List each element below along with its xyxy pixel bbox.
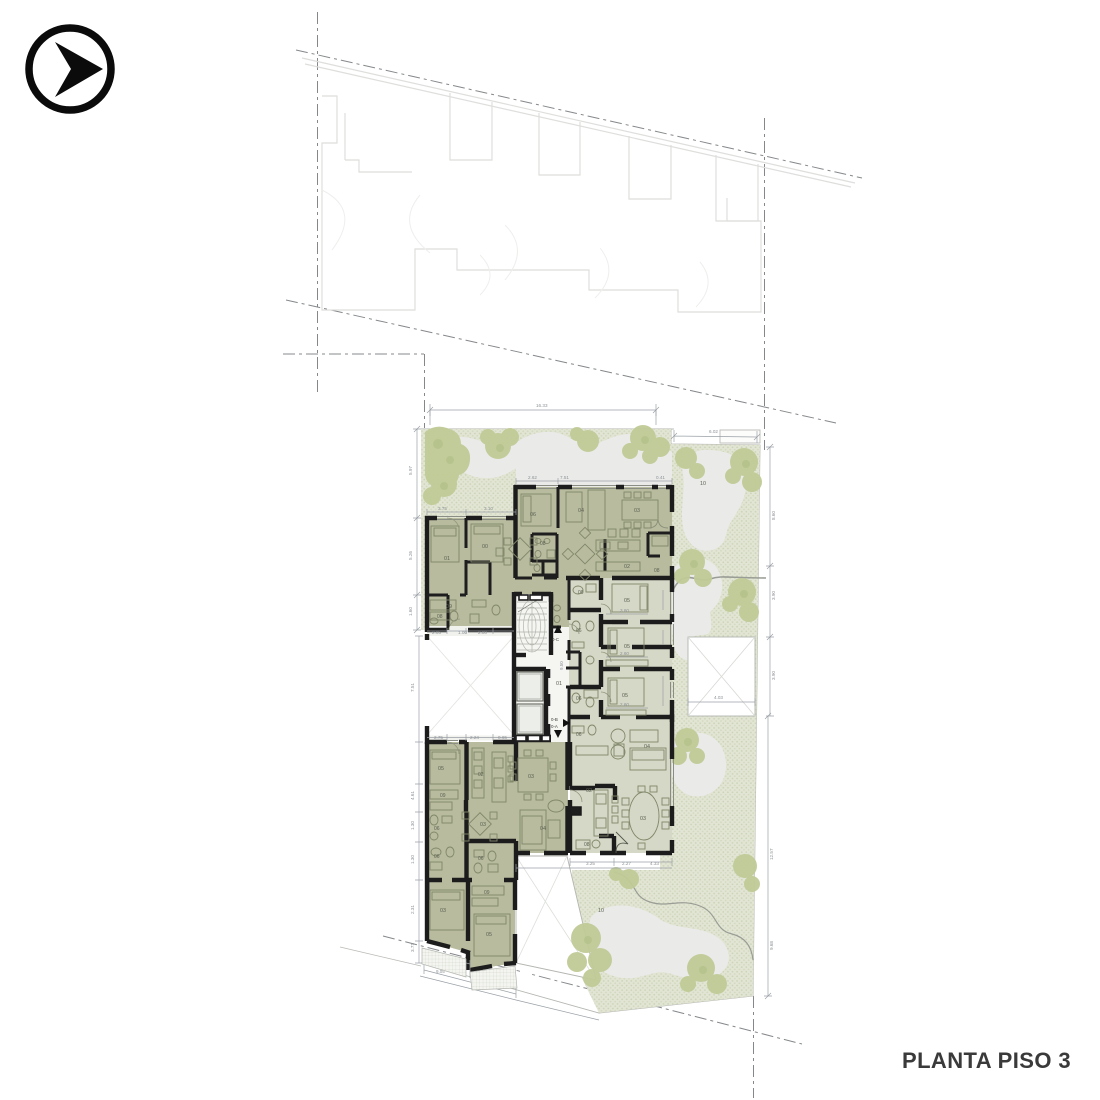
svg-text:1.30: 1.30 bbox=[410, 821, 415, 830]
svg-text:08: 08 bbox=[437, 614, 443, 620]
svg-text:0.65: 0.65 bbox=[498, 735, 507, 740]
svg-text:06: 06 bbox=[434, 854, 440, 860]
svg-text:10: 10 bbox=[598, 908, 604, 914]
svg-text:5.97: 5.97 bbox=[408, 466, 413, 475]
svg-text:04: 04 bbox=[540, 826, 546, 832]
svg-text:3.75: 3.75 bbox=[438, 506, 447, 511]
svg-text:02: 02 bbox=[478, 772, 484, 778]
svg-text:05: 05 bbox=[438, 766, 444, 772]
svg-text:2.31: 2.31 bbox=[410, 905, 415, 914]
svg-text:2.27: 2.27 bbox=[622, 861, 631, 866]
svg-text:01: 01 bbox=[444, 556, 450, 562]
svg-text:05: 05 bbox=[486, 932, 492, 938]
svg-text:04: 04 bbox=[578, 508, 584, 514]
svg-text:01: 01 bbox=[556, 681, 562, 687]
svg-text:2.00: 2.00 bbox=[478, 630, 487, 635]
svg-text:6.02: 6.02 bbox=[709, 429, 718, 434]
svg-text:08: 08 bbox=[584, 842, 590, 848]
svg-text:1.60: 1.60 bbox=[408, 607, 413, 616]
svg-text:9.50: 9.50 bbox=[559, 661, 564, 670]
svg-text:08: 08 bbox=[540, 541, 546, 547]
svg-text:04: 04 bbox=[644, 744, 650, 750]
svg-text:1.30: 1.30 bbox=[410, 855, 415, 864]
svg-text:02: 02 bbox=[624, 564, 630, 570]
svg-text:09: 09 bbox=[446, 604, 452, 610]
svg-text:2.75: 2.75 bbox=[434, 735, 443, 740]
svg-text:1.00: 1.00 bbox=[458, 630, 467, 635]
svg-text:2.05: 2.05 bbox=[432, 630, 441, 635]
svg-text:8.60: 8.60 bbox=[771, 511, 776, 520]
svg-text:03: 03 bbox=[634, 508, 640, 514]
svg-text:3.60: 3.60 bbox=[620, 608, 629, 613]
svg-text:03: 03 bbox=[480, 822, 486, 828]
svg-text:4.33: 4.33 bbox=[650, 861, 659, 866]
svg-text:05: 05 bbox=[622, 693, 628, 699]
svg-text:03: 03 bbox=[440, 908, 446, 914]
svg-text:0-A: 0-A bbox=[551, 724, 558, 729]
svg-text:3.25: 3.25 bbox=[586, 861, 595, 866]
svg-text:0-B: 0-B bbox=[551, 717, 558, 722]
svg-text:06: 06 bbox=[478, 856, 484, 862]
svg-text:3.71: 3.71 bbox=[410, 943, 415, 952]
svg-text:3.90: 3.90 bbox=[771, 671, 776, 680]
svg-text:3.10: 3.10 bbox=[484, 506, 493, 511]
svg-text:2.24: 2.24 bbox=[470, 735, 479, 740]
svg-text:06: 06 bbox=[576, 696, 582, 702]
svg-text:12.57: 12.57 bbox=[769, 848, 774, 860]
svg-text:09: 09 bbox=[578, 590, 584, 596]
svg-text:2.62: 2.62 bbox=[528, 475, 537, 480]
svg-text:10: 10 bbox=[700, 481, 706, 487]
svg-text:03: 03 bbox=[528, 774, 534, 780]
svg-text:7.51: 7.51 bbox=[410, 683, 415, 692]
svg-text:0-C: 0-C bbox=[552, 637, 559, 642]
svg-text:09: 09 bbox=[484, 890, 490, 896]
svg-text:0.41: 0.41 bbox=[656, 475, 665, 480]
svg-text:06: 06 bbox=[434, 826, 440, 832]
svg-text:06: 06 bbox=[530, 512, 536, 518]
svg-text:09: 09 bbox=[440, 793, 446, 799]
svg-text:16.33: 16.33 bbox=[536, 403, 548, 408]
svg-text:02: 02 bbox=[586, 788, 592, 794]
svg-text:05: 05 bbox=[624, 598, 630, 604]
svg-text:08: 08 bbox=[654, 568, 660, 574]
svg-text:7.51: 7.51 bbox=[560, 475, 569, 480]
svg-text:4.61: 4.61 bbox=[410, 791, 415, 800]
svg-text:4.03: 4.03 bbox=[714, 695, 723, 700]
svg-text:2.60: 2.60 bbox=[620, 702, 629, 707]
svg-text:5.26: 5.26 bbox=[408, 551, 413, 560]
svg-text:2.60: 2.60 bbox=[620, 651, 629, 656]
svg-text:3.90: 3.90 bbox=[771, 591, 776, 600]
svg-text:03: 03 bbox=[640, 816, 646, 822]
svg-text:06: 06 bbox=[576, 732, 582, 738]
svg-text:9.68: 9.68 bbox=[769, 941, 774, 950]
svg-text:00: 00 bbox=[482, 544, 488, 550]
svg-text:05: 05 bbox=[624, 644, 630, 650]
